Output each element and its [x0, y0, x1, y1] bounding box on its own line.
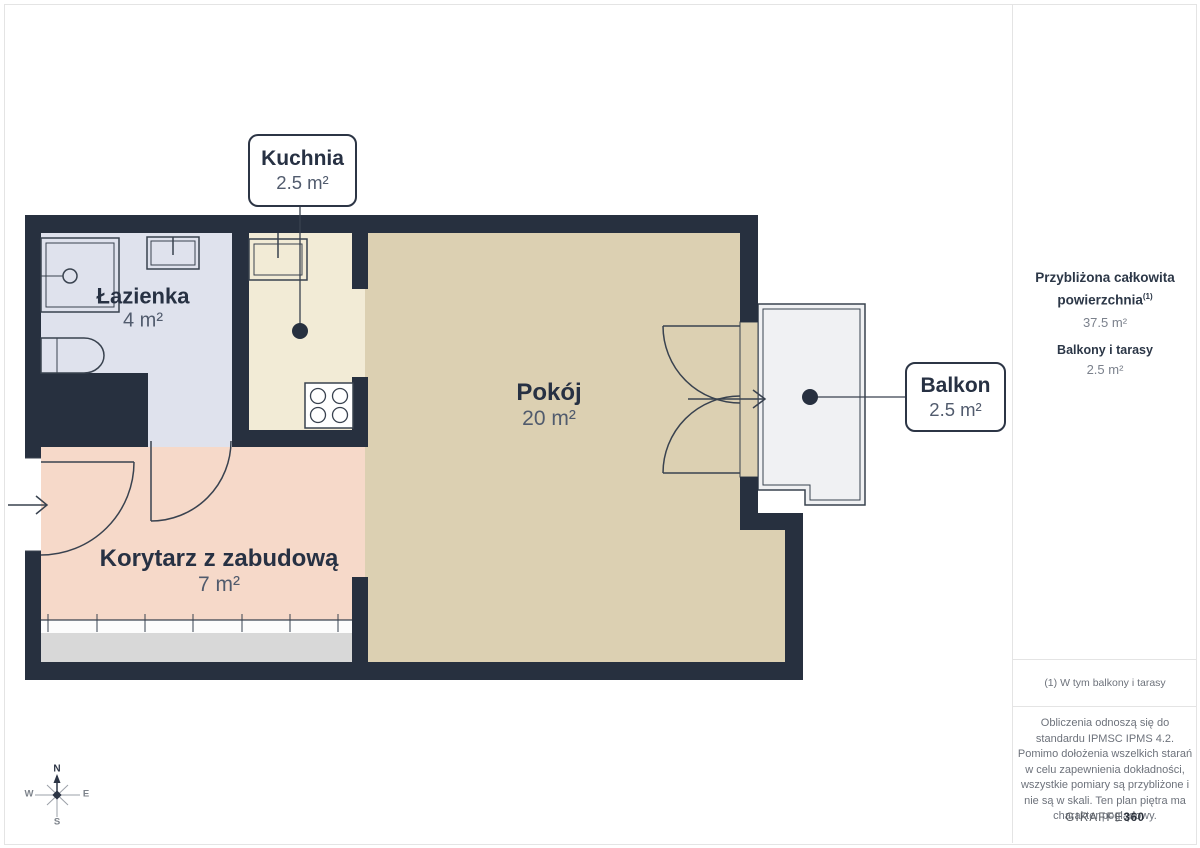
toilet-icon: [41, 338, 104, 373]
compass-icon: [35, 774, 80, 817]
balcony-area-label: Balkony i tarasy: [1013, 343, 1197, 357]
corridor-label: Korytarz z zabudową 7 m²: [100, 545, 339, 597]
room-floor-extension: [740, 530, 785, 662]
bathroom-sink-icon: [147, 237, 199, 269]
balcony-callout: Balkon 2.5 m²: [905, 362, 1006, 432]
kitchen-sink-icon: [249, 233, 307, 280]
wardrobe: [41, 614, 352, 662]
compass-north-label: N: [53, 764, 60, 775]
giraffe360-logo: GIRAFFE360: [1013, 812, 1197, 824]
info-sidebar: Przybliżona całkowita powierzchnia(1) 37…: [1012, 4, 1197, 843]
total-area-label: Przybliżona całkowita powierzchnia(1): [1013, 268, 1197, 310]
compass-south-label: S: [54, 817, 60, 828]
wardrobe-interior: [41, 633, 352, 662]
disclaimer-text: Obliczenia odnoszą się do standardu IPMS…: [1016, 716, 1194, 825]
bathroom-label: Łazienka 4 m²: [97, 284, 190, 333]
compass-west-label: W: [25, 789, 34, 800]
kitchen-leader-dot: [292, 323, 308, 339]
kitchen-callout: Kuchnia 2.5 m²: [248, 134, 357, 207]
room-label-pokoj: Pokój 20 m²: [516, 379, 581, 431]
total-area-value: 37.5 m²: [1013, 315, 1197, 330]
room-floor: [365, 233, 740, 662]
area-summary: Przybliżona całkowita powierzchnia(1) 37…: [1013, 268, 1197, 377]
wardrobe-doors: [41, 620, 352, 633]
stove-icon: [305, 383, 353, 428]
compass-east-label: E: [83, 789, 89, 800]
sidebar-divider-bottom: [1013, 706, 1197, 707]
balcony-area-value: 2.5 m²: [1013, 362, 1197, 377]
footnote: (1) W tym balkony i tarasy: [1013, 659, 1197, 706]
floorplan-page: Łazienka 4 m² Pokój 20 m² Korytarz z zab…: [0, 0, 1200, 848]
balcony-leader-dot: [802, 389, 818, 405]
